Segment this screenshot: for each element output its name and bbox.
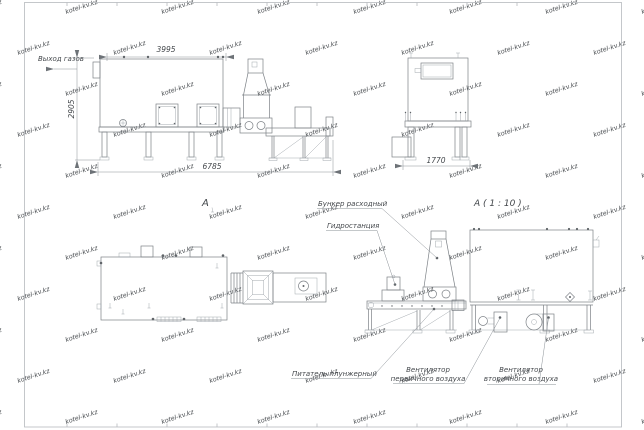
watermark-text: kotel-kv.kz	[544, 326, 579, 344]
watermark-text: kotel-kv.kz	[16, 203, 51, 221]
watermark-text: kotel-kv.kz	[16, 121, 51, 139]
watermark-text: kotel-kv.kz	[448, 326, 483, 344]
view-a-label: А	[201, 198, 209, 209]
detail-view-linework	[365, 228, 599, 333]
watermark-text: kotel-kv.kz	[16, 367, 51, 385]
watermark-text: kotel-kv.kz	[256, 244, 291, 262]
drawing-sheet: kotel-kv.kzkotel-kv.kzkotel-kv.kzkotel-k…	[0, 0, 644, 430]
watermark-text: kotel-kv.kz	[0, 326, 3, 344]
watermark-text: kotel-kv.kz	[160, 408, 195, 426]
watermark-text: kotel-kv.kz	[112, 285, 147, 303]
primary-fan-label-line2: первичного воздуха	[391, 375, 466, 383]
watermark-text: kotel-kv.kz	[208, 285, 243, 303]
watermark-text: kotel-kv.kz	[112, 121, 147, 139]
watermark-text: kotel-kv.kz	[352, 326, 387, 344]
watermark-text: kotel-kv.kz	[592, 367, 627, 385]
watermark-text: kotel-kv.kz	[640, 80, 644, 98]
watermark-text: kotel-kv.kz	[0, 80, 3, 98]
watermark-text: kotel-kv.kz	[256, 326, 291, 344]
watermark-text: kotel-kv.kz	[0, 162, 3, 180]
watermark-text: kotel-kv.kz	[640, 408, 644, 426]
watermark-text: kotel-kv.kz	[64, 244, 99, 262]
hopper-label: Бункер расходный	[318, 200, 388, 208]
watermark-text: kotel-kv.kz	[160, 162, 195, 180]
watermark-text: kotel-kv.kz	[592, 285, 627, 303]
detail-title: А ( 1 : 10 )	[473, 199, 522, 209]
watermark-text: kotel-kv.kz	[640, 0, 644, 16]
watermark-text: kotel-kv.kz	[352, 162, 387, 180]
watermark-text: kotel-kv.kz	[640, 326, 644, 344]
watermark-text: kotel-kv.kz	[592, 39, 627, 57]
hydraulic-label: Гидростанция	[327, 222, 379, 230]
watermark-text: kotel-kv.kz	[0, 408, 3, 426]
watermark-text: kotel-kv.kz	[64, 162, 99, 180]
watermark-text: kotel-kv.kz	[448, 162, 483, 180]
dimension-left-2905: 2905	[67, 58, 100, 160]
primary-fan-label-line1: Вентилятор	[406, 366, 450, 374]
watermark-text: kotel-kv.kz	[496, 285, 531, 303]
watermark-text: kotel-kv.kz	[400, 203, 435, 221]
watermark-text: kotel-kv.kz	[0, 244, 3, 262]
watermark-text: kotel-kv.kz	[208, 121, 243, 139]
watermark-text: kotel-kv.kz	[496, 39, 531, 57]
watermark-text: kotel-kv.kz	[448, 80, 483, 98]
watermark-text: kotel-kv.kz	[400, 285, 435, 303]
watermark-text: kotel-kv.kz	[544, 244, 579, 262]
watermark-text: kotel-kv.kz	[0, 0, 3, 16]
side-view-linework	[93, 59, 333, 161]
watermark-text: kotel-kv.kz	[544, 408, 579, 426]
watermark-text: kotel-kv.kz	[352, 244, 387, 262]
watermark-text: kotel-kv.kz	[592, 203, 627, 221]
plan-view-linework	[97, 246, 326, 322]
watermark-text: kotel-kv.kz	[544, 162, 579, 180]
watermark-text: kotel-kv.kz	[448, 408, 483, 426]
watermark-text: kotel-kv.kz	[352, 408, 387, 426]
watermark-text: kotel-kv.kz	[112, 367, 147, 385]
watermark-text: kotel-kv.kz	[304, 39, 339, 57]
watermark-text: kotel-kv.kz	[208, 39, 243, 57]
watermark-text: kotel-kv.kz	[400, 121, 435, 139]
watermark-text: kotel-kv.kz	[640, 244, 644, 262]
end-view-linework	[392, 53, 471, 160]
watermark-text: kotel-kv.kz	[400, 39, 435, 57]
watermark-text: kotel-kv.kz	[256, 162, 291, 180]
callout-secondary-fan: Вентилятор вторичного воздуха	[484, 318, 558, 385]
watermark-text: kotel-kv.kz	[64, 326, 99, 344]
secondary-fan-label-line1: Вентилятор	[499, 366, 543, 374]
watermark-text: kotel-kv.kz	[112, 203, 147, 221]
end-view: 1770	[392, 53, 471, 170]
watermark-text: kotel-kv.kz	[592, 121, 627, 139]
watermark-text: kotel-kv.kz	[112, 39, 147, 57]
dim-left-value: 2905	[67, 99, 76, 118]
view-a-marker: А	[201, 198, 214, 212]
watermark-text: kotel-kv.kz	[256, 408, 291, 426]
watermark-text: kotel-kv.kz	[160, 80, 195, 98]
watermark-text: kotel-kv.kz	[640, 162, 644, 180]
dim-end-value: 1770	[426, 156, 445, 165]
watermark-text: kotel-kv.kz	[544, 80, 579, 98]
dim-top-value: 3995	[156, 45, 175, 54]
watermark-text: kotel-kv.kz	[352, 80, 387, 98]
drawing-canvas: kotel-kv.kzkotel-kv.kzkotel-kv.kzkotel-k…	[0, 0, 644, 430]
dim-bottom-value: 6785	[202, 162, 221, 171]
watermark-text: kotel-kv.kz	[64, 80, 99, 98]
feeder-label: Питатель плунжерный	[292, 370, 377, 378]
watermark-text: kotel-kv.kz	[496, 121, 531, 139]
watermark-text: kotel-kv.kz	[160, 326, 195, 344]
watermark-text: kotel-kv.kz	[208, 367, 243, 385]
callout-primary-fan: Вентилятор первичного воздуха	[391, 318, 500, 384]
secondary-fan-label-line2: вторичного воздуха	[484, 375, 558, 383]
watermark-text: kotel-kv.kz	[64, 408, 99, 426]
watermark-layer: kotel-kv.kzkotel-kv.kzkotel-kv.kzkotel-k…	[0, 0, 644, 426]
watermark-text: kotel-kv.kz	[16, 285, 51, 303]
watermark-text: kotel-kv.kz	[448, 244, 483, 262]
side-view: Выход газов 3995 2905 6785	[38, 45, 333, 176]
